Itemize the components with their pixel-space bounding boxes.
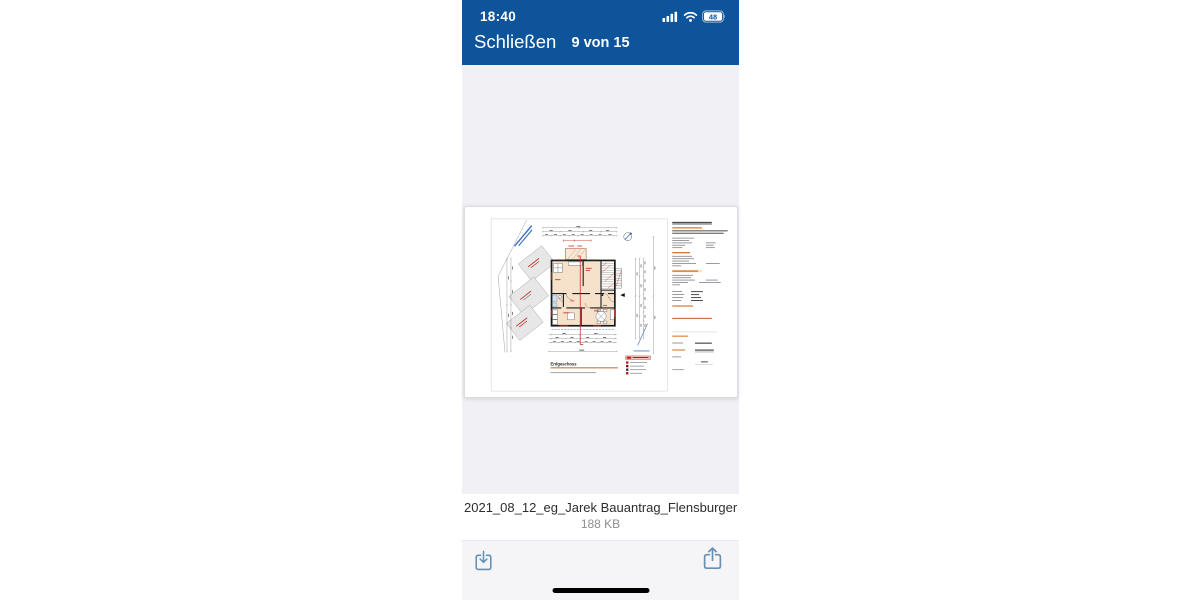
external-stairs xyxy=(616,268,625,297)
document-page[interactable]: Erdgeschoss xyxy=(464,206,738,398)
page-indicator-label: 9 von 15 xyxy=(462,35,739,51)
roof-area-3 xyxy=(506,305,543,340)
floor-plan-drawing: Erdgeschoss xyxy=(465,207,737,397)
header: 18:40 xyxy=(462,0,739,65)
drawing-title-label: Erdgeschoss xyxy=(551,361,578,366)
terrace xyxy=(565,246,586,260)
legend xyxy=(626,356,651,375)
nav-bar: Schließen 9 von 15 xyxy=(462,28,739,66)
bottom-toolbar xyxy=(462,540,739,600)
download-icon xyxy=(471,548,496,573)
bottom-dimension-chain xyxy=(548,333,618,352)
right-dimension-chain xyxy=(634,236,656,354)
download-button[interactable] xyxy=(471,548,496,573)
north-arrow-icon xyxy=(624,232,633,241)
top-dimension-chain xyxy=(542,226,618,242)
share-icon xyxy=(699,544,726,571)
screenshot-canvas: 18:40 xyxy=(0,0,1200,600)
status-bar: 18:40 xyxy=(462,0,739,28)
share-button[interactable] xyxy=(699,544,726,571)
battery-percent-label: 48 xyxy=(709,12,717,21)
street-label-placeholder xyxy=(514,225,534,248)
wifi-icon xyxy=(683,11,698,22)
document-viewer[interactable]: Erdgeschoss xyxy=(462,65,739,494)
battery-icon: 48 xyxy=(702,10,727,23)
drawing-title: Erdgeschoss xyxy=(551,361,618,373)
floor-plan xyxy=(551,259,615,326)
title-block xyxy=(672,222,727,370)
file-name-label: 2021_08_12_eg_Jarek Bauantrag_Flensburge… xyxy=(462,500,739,515)
status-time: 18:40 xyxy=(480,9,516,24)
file-info: 2021_08_12_eg_Jarek Bauantrag_Flensburge… xyxy=(462,494,739,540)
phone-screen: 18:40 xyxy=(462,0,739,600)
status-icons: 48 xyxy=(662,10,727,23)
home-indicator[interactable] xyxy=(552,588,649,593)
left-dimension-chain xyxy=(506,258,513,353)
roof-area-1 xyxy=(518,246,555,281)
file-size-label: 188 KB xyxy=(462,517,739,531)
signal-icon xyxy=(662,11,679,22)
entry-arrow xyxy=(620,293,624,297)
